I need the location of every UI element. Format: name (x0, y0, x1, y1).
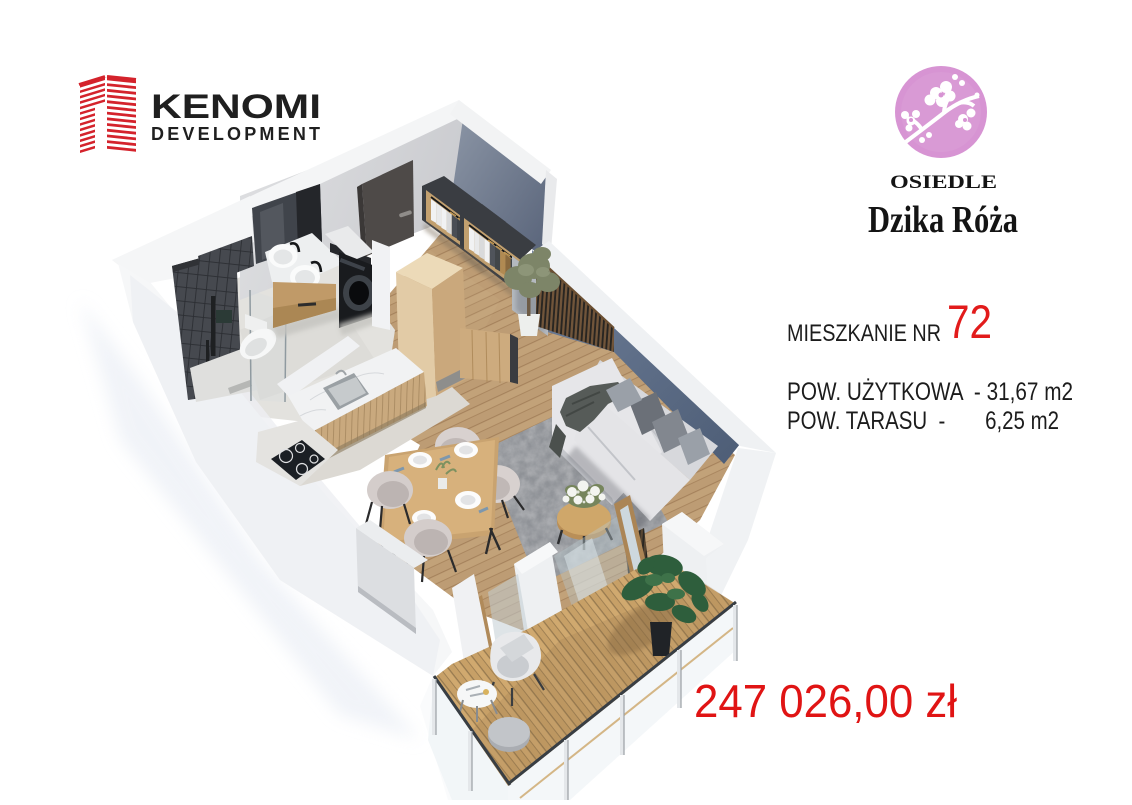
svg-text:POW. TARASU - 6,25 m2: POW. TARASU - 6,25 m2 (787, 407, 1059, 435)
svg-text:247 026,00 zł: 247 026,00 zł (694, 675, 957, 727)
svg-text:OSIEDLE: OSIEDLE (890, 172, 997, 193)
svg-text:MIESZKANIE NR: MIESZKANIE NR (787, 320, 941, 347)
svg-text:DEVELOPMENT: DEVELOPMENT (151, 124, 323, 144)
svg-text:72: 72 (947, 295, 992, 348)
svg-text:KENOMI: KENOMI (151, 88, 321, 126)
svg-text:POW. UŻYTKOWA - 31,67 m2: POW. UŻYTKOWA - 31,67 m2 (787, 377, 1073, 406)
svg-text:Dzika Róża: Dzika Róża (868, 199, 1018, 241)
